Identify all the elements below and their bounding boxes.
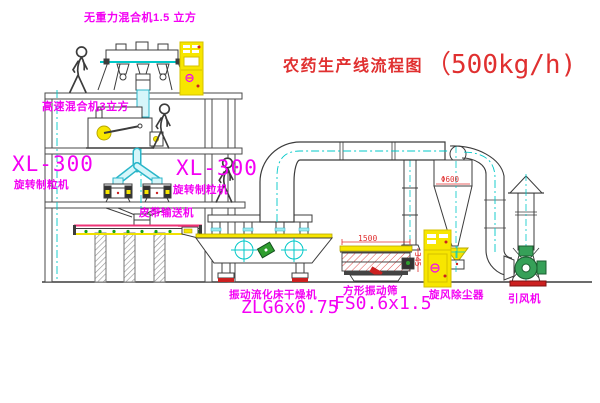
belt-pier [124, 233, 135, 282]
label-granulator-left-model: XL-300 [12, 154, 94, 175]
label-granulator-right-name: 旋转制粒机 [173, 185, 228, 196]
control-cabinet-bottom [424, 230, 451, 287]
diagram-page: 农药生产线流程图 （500kg/h) 无重力混合机1.5 立方 高速混合机3立方… [0, 0, 600, 403]
exhaust-duct [260, 142, 448, 222]
title-text: 农药生产线流程图 [283, 44, 423, 76]
label-granulator-right-model: XL-300 [176, 158, 258, 179]
worker-top-floor [70, 47, 87, 92]
label-granulator-left-name: 旋转制粒机 [14, 180, 69, 191]
label-belt-conveyor: 皮带输送机 [139, 208, 194, 219]
dimension-screen-length: 1500 [358, 235, 377, 243]
screen-feed-pipe [400, 159, 420, 250]
label-high-speed-mixer: 高速混合机3立方 [42, 102, 129, 113]
rotary-granulator-right [143, 178, 171, 202]
belt-pier [154, 233, 165, 282]
label-gravity-free-mixer: 无重力混合机1.5 立方 [84, 13, 196, 24]
dimension-screen-height: 345 [413, 252, 421, 266]
label-dryer-model: ZLG6x0.75 [241, 299, 339, 317]
rotary-granulator-left [104, 178, 132, 202]
diagram-title: 农药生产线流程图 （500kg/h) [283, 44, 576, 81]
y-chute [119, 152, 157, 180]
control-cabinet-top [180, 42, 203, 95]
label-fan: 引风机 [508, 294, 541, 305]
high-speed-mixer [86, 107, 163, 148]
title-capacity: （500kg/h) [425, 44, 576, 81]
label-screen-model: FS0.6x1.5 [334, 295, 432, 313]
dimension-cyclone-diameter: Φ600 [441, 176, 459, 184]
belt-pier [95, 233, 106, 282]
label-cyclone: 旋风除尘器 [429, 290, 484, 301]
